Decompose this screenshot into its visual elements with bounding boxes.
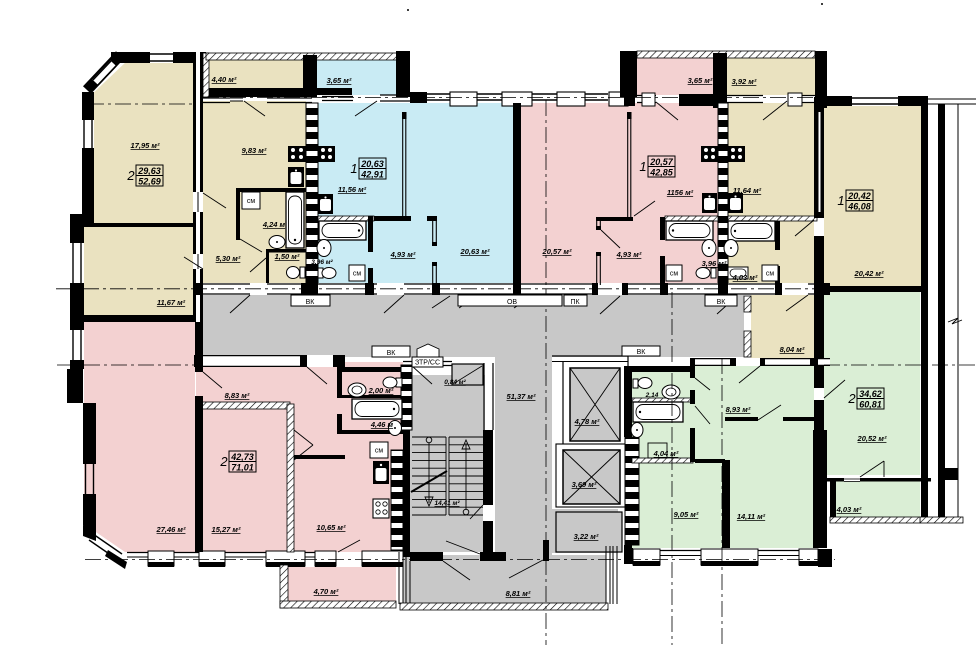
svg-text:5,30 м²: 5,30 м² — [216, 254, 241, 263]
svg-text:1,50 м²: 1,50 м² — [275, 252, 300, 261]
svg-text:11,64 м²: 11,64 м² — [733, 186, 762, 195]
svg-text:71,01: 71,01 — [231, 463, 254, 473]
svg-text:20,42 м²: 20,42 м² — [854, 269, 884, 278]
svg-text:2,14: 2,14 — [645, 392, 659, 399]
svg-text:27,46 м²: 27,46 м² — [156, 525, 186, 534]
svg-text:9,83 м²: 9,83 м² — [242, 146, 267, 155]
svg-text:42,91: 42,91 — [360, 170, 384, 180]
svg-text:42,73: 42,73 — [230, 452, 254, 462]
svg-text:ВК: ВК — [306, 299, 316, 306]
svg-text:3,65 м²: 3,65 м² — [688, 76, 713, 85]
svg-text:20,52 м²: 20,52 м² — [857, 434, 887, 443]
svg-text:15,27 м²: 15,27 м² — [212, 525, 241, 534]
svg-text:14,41 м²: 14,41 м² — [434, 500, 460, 507]
svg-text:4,40 м²: 4,40 м² — [211, 75, 237, 84]
svg-text:60,81: 60,81 — [859, 400, 882, 410]
svg-text:1: 1 — [837, 193, 844, 208]
svg-text:46,08: 46,08 — [847, 202, 871, 212]
svg-text:4,03 м²: 4,03 м² — [732, 273, 758, 282]
svg-text:1: 1 — [350, 161, 357, 176]
svg-text:ВК: ВК — [637, 349, 647, 356]
svg-text:4,78 м²: 4,78 м² — [574, 417, 600, 426]
svg-text:см: см — [766, 271, 775, 278]
svg-text:ВК: ВК — [717, 299, 727, 306]
svg-text:29,63: 29,63 — [137, 166, 161, 176]
svg-text:14,11 м²: 14,11 м² — [737, 512, 766, 521]
svg-text:2: 2 — [219, 454, 228, 469]
svg-text:4,93 м²: 4,93 м² — [616, 250, 642, 259]
svg-text:8,93 м²: 8,93 м² — [726, 405, 751, 414]
svg-text:20,57 м²: 20,57 м² — [542, 247, 572, 256]
svg-text:3,96 м²: 3,96 м² — [702, 259, 727, 268]
svg-text:20,63 м²: 20,63 м² — [460, 247, 490, 256]
svg-text:ОВ: ОВ — [507, 299, 517, 306]
svg-text:34,62: 34,62 — [859, 389, 882, 399]
svg-text:4,04 м²: 4,04 м² — [653, 449, 679, 458]
svg-text:1156 м²: 1156 м² — [667, 188, 694, 197]
svg-text:8,81 м²: 8,81 м² — [506, 589, 531, 598]
svg-text:2: 2 — [126, 168, 135, 183]
svg-text:4,24 м: 4,24 м — [262, 220, 286, 229]
svg-text:20,63: 20,63 — [360, 159, 384, 169]
svg-text:3,69 м²: 3,69 м² — [572, 480, 597, 489]
svg-text:4,46 м: 4,46 м — [370, 420, 394, 429]
svg-text:4,03 м²: 4,03 м² — [836, 505, 862, 514]
svg-text:11,56 м²: 11,56 м² — [338, 185, 367, 194]
svg-text:3,65 м²: 3,65 м² — [327, 76, 352, 85]
svg-text:8,83 м²: 8,83 м² — [225, 391, 250, 400]
svg-text:см: см — [247, 198, 256, 205]
svg-text:ЗТР/СС: ЗТР/СС — [415, 360, 440, 367]
svg-text:11,67 м²: 11,67 м² — [157, 298, 186, 307]
svg-text:10,65 м²: 10,65 м² — [317, 523, 346, 532]
svg-text:4,70 м²: 4,70 м² — [313, 587, 339, 596]
svg-text:см: см — [353, 271, 362, 278]
svg-text:3,22 м²: 3,22 м² — [574, 532, 599, 541]
svg-text:ВК: ВК — [387, 350, 397, 357]
svg-text:см: см — [670, 271, 679, 278]
svg-text:20,57: 20,57 — [649, 157, 674, 167]
svg-text:20,42: 20,42 — [847, 191, 871, 201]
svg-text:42,85: 42,85 — [649, 168, 674, 178]
svg-text:8,04 м²: 8,04 м² — [780, 345, 805, 354]
svg-text:ПК: ПК — [570, 299, 580, 306]
svg-text:51,37 м²: 51,37 м² — [507, 392, 536, 401]
svg-text:2: 2 — [847, 391, 856, 406]
svg-text:2,00 м²: 2,00 м² — [368, 386, 394, 395]
svg-text:см: см — [375, 448, 384, 455]
svg-text:52,69: 52,69 — [138, 177, 161, 187]
svg-text:3,96 м²: 3,96 м² — [311, 259, 333, 266]
svg-text:1: 1 — [639, 159, 646, 174]
svg-text:4,93 м²: 4,93 м² — [390, 250, 416, 259]
svg-text:0,84 м²: 0,84 м² — [444, 379, 466, 386]
svg-text:9,05 м²: 9,05 м² — [674, 510, 699, 519]
svg-text:17,95 м²: 17,95 м² — [131, 141, 160, 150]
svg-text:3,92 м²: 3,92 м² — [732, 77, 757, 86]
